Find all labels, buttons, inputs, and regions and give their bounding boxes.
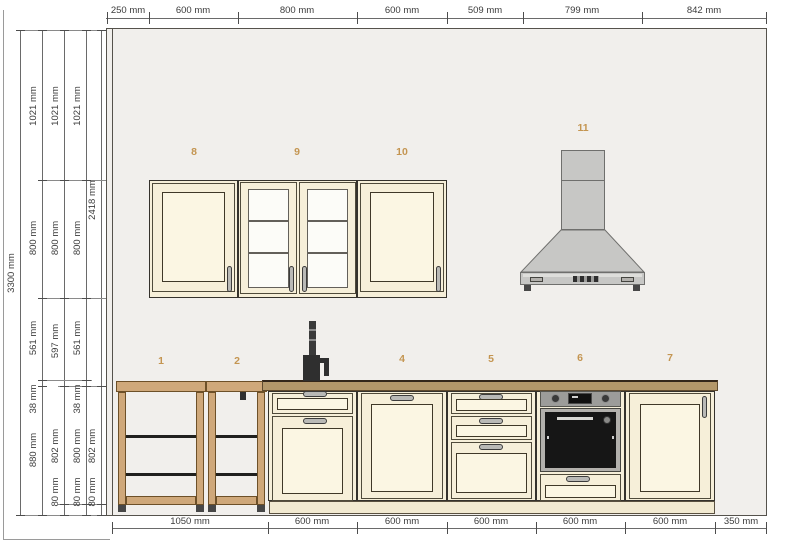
glass-pane <box>248 189 289 221</box>
unit-label-2: 2 <box>222 355 252 367</box>
dim-chain-total <box>20 30 21 516</box>
frame-bottom-line <box>3 539 110 540</box>
base-frame-2-clamp <box>240 392 246 400</box>
dim-label-left: 561 mm <box>28 308 40 368</box>
glass-pane <box>307 189 348 221</box>
dim-tick <box>82 298 91 299</box>
faucet-band <box>309 329 316 331</box>
dim-tick <box>642 12 643 24</box>
base-frame-1-right-leg <box>196 392 204 505</box>
dim-chain-e <box>101 30 102 516</box>
glass-pane <box>307 221 348 253</box>
base-cabinet-5-drawer-1-panel <box>456 399 527 411</box>
unit-label-7: 7 <box>655 352 685 364</box>
base-frame-2-foot <box>208 505 216 512</box>
base-frame-2-bottom-rail <box>216 496 257 505</box>
dim-tick <box>447 12 448 24</box>
base-cabinet-5-drawer-2-handle[interactable] <box>479 418 503 424</box>
dim-tick <box>38 180 47 181</box>
faucet-band <box>309 339 316 341</box>
sink-cabinet-door-handle[interactable] <box>303 418 327 424</box>
hood-canopy[interactable] <box>520 229 645 273</box>
hood-foot-left <box>524 285 531 291</box>
frame-left-line <box>3 10 4 540</box>
glass-pane <box>248 253 289 288</box>
dim-label-left: 2418 mm <box>87 170 99 230</box>
countertop[interactable] <box>262 380 718 391</box>
base-frame-1-top-rail[interactable] <box>116 381 206 392</box>
base-cabinet-7-door-panel <box>640 404 700 492</box>
dim-tick <box>523 12 524 24</box>
plinth <box>269 501 715 514</box>
hood-light-left <box>530 277 543 282</box>
dim-tick <box>82 30 91 31</box>
dim-label-bottom: 600 mm <box>635 516 705 527</box>
base-frame-1-shelf <box>126 435 196 438</box>
dim-label-left: 1021 mm <box>72 76 84 136</box>
oven-cabinet-drawer-panel <box>545 485 616 498</box>
base-frame-2-shelf <box>216 473 257 476</box>
wall-cabinet-9-right-handle[interactable] <box>302 266 307 292</box>
unit-label-11: 11 <box>568 122 598 134</box>
dim-label-top: 250 mm <box>93 5 163 16</box>
dim-label-bottom: 600 mm <box>456 516 526 527</box>
dim-label-top: 600 mm <box>367 5 437 16</box>
base-frame-1-foot <box>196 505 204 512</box>
dim-label-top: 600 mm <box>158 5 228 16</box>
dim-tick <box>16 515 25 516</box>
dim-label-bottom: 1050 mm <box>155 516 225 527</box>
base-frame-2-shelf <box>216 435 257 438</box>
dim-label-bottom: 600 mm <box>277 516 347 527</box>
unit-label-1: 1 <box>146 355 176 367</box>
oven-knob-right[interactable] <box>601 394 610 403</box>
wall-inner-edge-line <box>112 28 113 516</box>
unit-label-9: 9 <box>282 146 312 158</box>
dim-label-bottom: 350 mm <box>706 516 776 527</box>
hood-foot-right <box>633 285 640 291</box>
dim-tick <box>60 30 69 31</box>
hood-light-right <box>621 277 634 282</box>
oven-display <box>568 393 592 404</box>
dim-tick <box>766 12 767 24</box>
sink-cabinet-drawer-handle[interactable] <box>303 391 327 397</box>
base-frame-2-top-rail[interactable] <box>206 381 267 392</box>
base-cabinet-5-drawer-2-panel <box>456 425 527 437</box>
dim-label-left: 800 mm <box>28 208 40 268</box>
dim-label-left: 1021 mm <box>28 76 40 136</box>
base-frame-2-right-leg <box>257 392 265 505</box>
wall-cabinet-8-door-panel <box>162 192 225 282</box>
dim-label-top: 842 mm <box>669 5 739 16</box>
dim-label-top: 800 mm <box>262 5 332 16</box>
glass-pane <box>307 253 348 288</box>
dim-tick <box>447 522 448 534</box>
dim-tick <box>60 386 69 387</box>
oven-hinge-dot <box>612 436 614 439</box>
dim-label-top: 509 mm <box>450 5 520 16</box>
faucet-spout-drop <box>324 358 329 376</box>
base-cabinet-5-drawer-3-panel <box>456 453 527 493</box>
dim-label-left: 1021 mm <box>50 76 62 136</box>
dim-tick <box>60 298 69 299</box>
dim-tick <box>60 180 69 181</box>
dim-tick <box>625 522 626 534</box>
unit-label-6: 6 <box>565 352 595 364</box>
oven-display-segment <box>572 396 578 398</box>
dim-tick <box>38 30 47 31</box>
dim-label-left: 80 mm <box>72 462 84 522</box>
oven-lamp <box>603 416 611 424</box>
dim-tick <box>97 30 106 31</box>
wall-cabinet-8-handle[interactable] <box>227 266 232 292</box>
unit-label-8: 8 <box>179 146 209 158</box>
base-frame-1-foot <box>118 505 126 512</box>
dim-tick <box>38 298 47 299</box>
dim-label-bottom: 600 mm <box>367 516 437 527</box>
base-frame-1-shelf <box>126 473 196 476</box>
base-cabinet-5-drawer-3-handle[interactable] <box>479 444 503 450</box>
dim-tick <box>268 522 269 534</box>
dim-label-bottom: 600 mm <box>545 516 615 527</box>
dim-label-left: 800 mm <box>50 208 62 268</box>
dim-label-left: 3300 mm <box>6 243 18 303</box>
glass-pane <box>248 221 289 253</box>
oven-door-handle[interactable] <box>557 417 593 420</box>
dim-line-top <box>106 18 767 19</box>
extension-line <box>38 298 106 299</box>
dim-label-left: 561 mm <box>72 308 84 368</box>
unit-label-5: 5 <box>476 353 506 365</box>
hood-chimney-lower[interactable] <box>561 180 605 230</box>
dim-label-left: 880 mm <box>28 420 40 480</box>
dim-label-left: 800 mm <box>72 208 84 268</box>
dim-tick <box>357 522 358 534</box>
dim-tick <box>112 522 113 534</box>
dim-tick <box>16 30 25 31</box>
kitchen-elevation-drawing: 250 mm 600 mm 800 mm 600 mm 509 mm 799 m… <box>0 0 800 548</box>
base-frame-1-left-leg <box>118 392 126 505</box>
dim-line-bottom <box>112 528 767 529</box>
dim-tick <box>38 515 47 516</box>
oven-knob-left[interactable] <box>551 394 560 403</box>
base-frame-2-foot <box>257 505 265 512</box>
dim-tick <box>238 12 239 24</box>
oven-hinge-dot <box>547 436 549 439</box>
oven-cabinet-drawer-handle[interactable] <box>566 476 590 482</box>
dim-label-top: 799 mm <box>547 5 617 16</box>
unit-label-10: 10 <box>387 146 417 158</box>
wall-cabinet-10-handle[interactable] <box>436 266 441 292</box>
unit-label-4: 4 <box>387 353 417 365</box>
wall-cabinet-9-left-handle[interactable] <box>289 266 294 292</box>
sink-cabinet-drawer-panel <box>277 398 348 410</box>
hood-chimney-upper[interactable] <box>561 150 605 181</box>
wall-cabinet-10-door-panel <box>370 192 434 282</box>
dim-label-left: 80 mm <box>87 462 99 522</box>
sink-cabinet-door-panel <box>282 428 343 494</box>
base-cabinet-4-handle[interactable] <box>390 395 414 401</box>
dim-label-left: 597 mm <box>50 311 62 371</box>
base-frame-1-bottom-rail <box>126 496 196 505</box>
hood-grill <box>573 276 599 282</box>
dim-tick <box>97 386 106 387</box>
dim-chain-b <box>42 30 43 516</box>
dim-tick <box>536 522 537 534</box>
base-frame-2-left-leg <box>208 392 216 505</box>
base-cabinet-7-handle[interactable] <box>702 396 707 418</box>
dim-label-left: 80 mm <box>50 462 62 522</box>
dim-tick <box>357 12 358 24</box>
base-cabinet-4-door-panel <box>371 404 433 492</box>
dim-chain-c <box>64 30 65 516</box>
